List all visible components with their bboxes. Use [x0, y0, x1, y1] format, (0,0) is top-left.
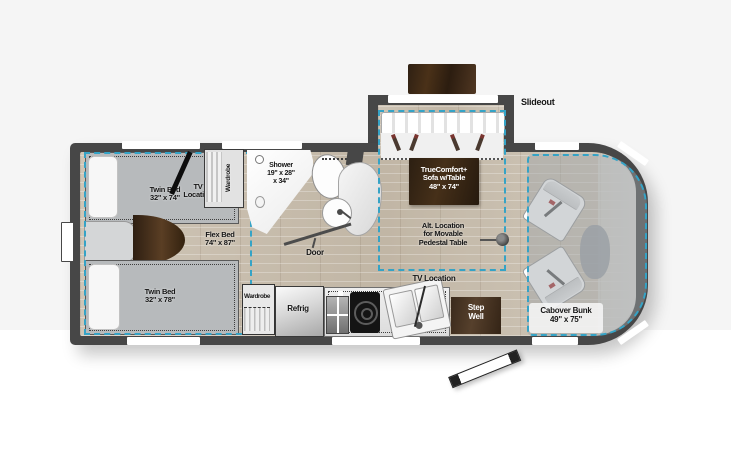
refrigerator: Refrig	[275, 286, 324, 337]
hanging-clothes-pattern	[206, 152, 222, 202]
tv-location-kitchen-label: TV Location	[404, 275, 464, 284]
door-label: Door	[300, 249, 330, 258]
hanging-clothes-pattern	[244, 307, 270, 331]
alt-table-pointer-line	[480, 239, 497, 241]
entry-door	[448, 349, 521, 388]
pedestal-mount-icon	[496, 233, 509, 246]
wardrobe-bottom-label: Wardrobe	[238, 293, 276, 300]
rv-floorplan-canvas: Slideout Twin Bed 32" x 74" Twin Bed 32"…	[0, 0, 731, 469]
cabover-label-plate: Cabover Bunk 49" x 75"	[529, 303, 603, 333]
stored-table	[408, 64, 476, 94]
left-wall-compartment	[61, 222, 74, 262]
burner-icon	[354, 301, 378, 325]
window	[332, 337, 420, 345]
refrig-label: Refrig	[276, 305, 320, 314]
slideout-label: Slideout	[521, 97, 591, 107]
slideout-window	[388, 95, 498, 103]
step-well-label: Step Well	[451, 304, 501, 322]
window	[532, 337, 578, 345]
cabover-bunk-label: Cabover Bunk 49" x 75"	[529, 307, 603, 325]
window	[535, 142, 579, 150]
window	[122, 141, 200, 149]
shower-drain-icon	[255, 196, 265, 208]
step-well: Step Well	[451, 297, 501, 334]
sofa-label: TrueComfort+ Sofa w/Table 48" x 74"	[409, 166, 479, 191]
wardrobe-top: Wardrobe	[204, 149, 244, 208]
window	[127, 337, 200, 345]
wardrobe-bottom: Wardrobe	[242, 284, 275, 335]
window	[222, 141, 302, 149]
cooktop-icon	[350, 292, 380, 333]
shower-label: Shower 19" x 28" x 34"	[250, 162, 312, 185]
grill-icon	[326, 296, 349, 334]
wardrobe-top-label: Wardrobe	[225, 153, 237, 203]
sofa-label-plate: TrueComfort+ Sofa w/Table 48" x 74"	[409, 158, 479, 205]
alt-table-label: Alt. Location for Movable Pedestal Table	[404, 222, 482, 247]
